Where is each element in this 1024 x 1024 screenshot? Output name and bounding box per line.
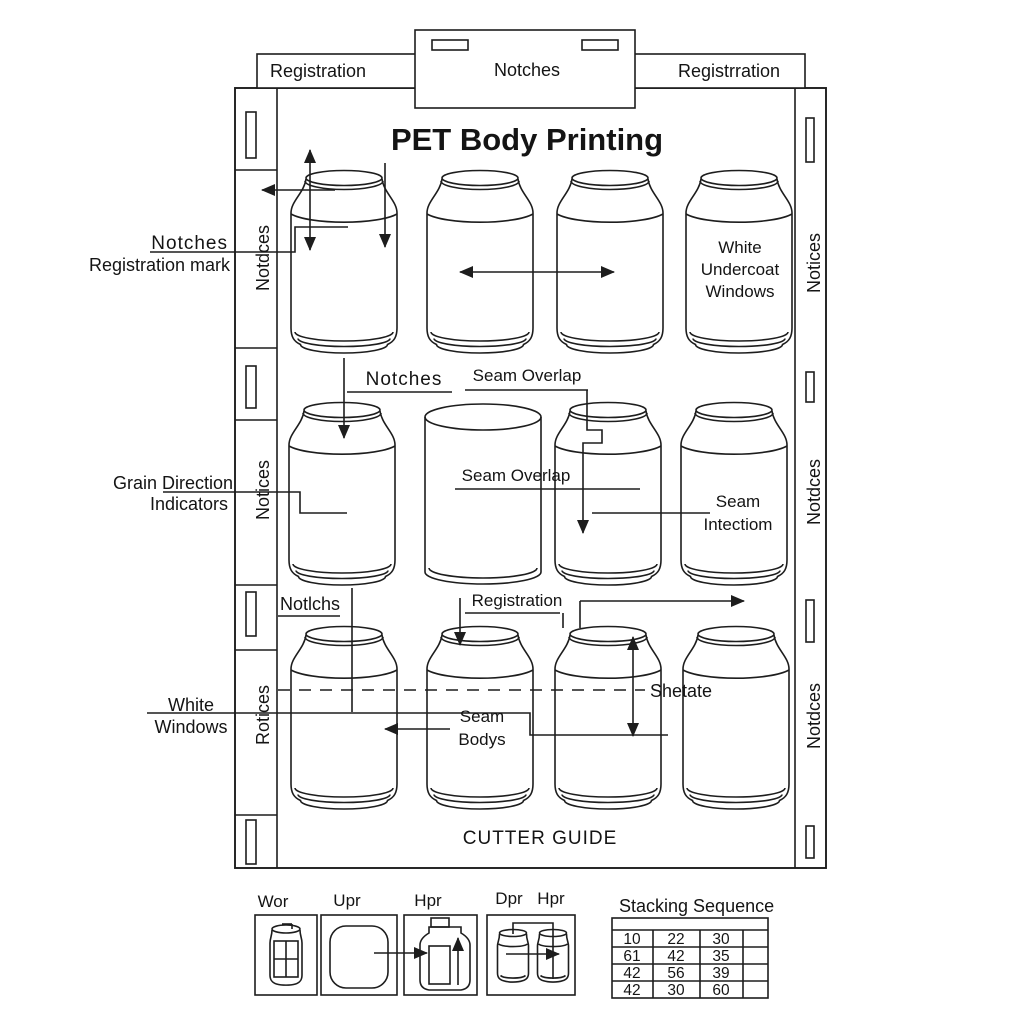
row2-cans	[289, 403, 787, 586]
row3-notches-label: Notlchs	[280, 594, 340, 614]
white-windows-label-2: Windows	[154, 717, 227, 737]
seam-overlap-leader-arrow	[583, 390, 602, 533]
stacking-cell: 30	[712, 931, 730, 948]
open-cylinder	[425, 404, 541, 584]
legend-label-hpr: Hpr	[414, 891, 442, 910]
row1-registration-mark-label: Registration mark	[89, 255, 231, 275]
row3-annotations	[147, 588, 744, 736]
row3-cans	[291, 627, 789, 810]
side-label-right-top: Notices	[804, 233, 824, 293]
legend	[255, 915, 575, 995]
row3-registration-label: Registration	[472, 591, 563, 610]
stacking-cell: 60	[712, 982, 730, 999]
seam-bodys-label-2: Bodys	[458, 730, 505, 749]
legend-label-wor: Wor	[258, 892, 289, 911]
can	[555, 627, 661, 810]
side-label-right-mid: Notdces	[804, 459, 824, 525]
can	[555, 403, 661, 586]
can	[289, 403, 395, 586]
white-windows-label-1: White	[168, 695, 214, 715]
can	[557, 171, 663, 354]
legend-label-upr: Upr	[333, 891, 361, 910]
grain-direction-label-2: Indicators	[150, 494, 228, 514]
seam-bodys-label-1: Seam	[460, 707, 504, 726]
legend-label-hpr2: Hpr	[537, 889, 565, 908]
white-undercoat-label-3: Windows	[706, 282, 775, 301]
diagram-canvas: Registration Notches Registrration PET B…	[0, 0, 1024, 1024]
bottle-with-window-icon	[420, 918, 470, 990]
side-label-left-top: Notdces	[253, 225, 273, 291]
can	[291, 171, 397, 354]
white-undercoat-label-1: White	[718, 238, 761, 257]
cutter-guide-label: CUTTER GUIDE	[463, 828, 618, 849]
legend-label-dpr: Dpr	[495, 889, 523, 908]
can-with-window-icon	[270, 924, 302, 985]
stacking-cell: 10	[623, 931, 641, 948]
side-label-left-bottom: Rotices	[253, 685, 273, 745]
pet-body-printing-diagram: Registration Notches Registrration PET B…	[0, 0, 1024, 1024]
top-left-label: Registration	[270, 61, 366, 81]
stacking-cell: 35	[712, 948, 729, 965]
stacking-cell: 30	[667, 982, 685, 999]
stacking-cell: 22	[667, 931, 684, 948]
stacking-cell: 61	[623, 948, 640, 965]
white-undercoat-label-2: Undercoat	[701, 260, 780, 279]
stacking-cell: 42	[623, 982, 640, 999]
row2-notches-label: Notches	[366, 369, 443, 390]
stacking-cell: 56	[667, 965, 684, 982]
stacking-cell: 39	[712, 965, 729, 982]
can	[683, 627, 789, 810]
seam-overlap-mid-label: Seam Overlap	[462, 466, 571, 485]
can	[427, 171, 533, 354]
top-center-label: Notches	[494, 60, 560, 80]
seam-overlap-top-label: Seam Overlap	[473, 366, 582, 385]
side-label-right-bottom: Notdces	[804, 683, 824, 749]
side-label-left-mid: Notices	[253, 460, 273, 520]
two-cans-icon	[498, 923, 569, 982]
top-right-label: Registrration	[678, 61, 780, 81]
seam-intection-label-1: Seam	[716, 492, 760, 511]
stacking-cell: 42	[623, 965, 640, 982]
registration-ticks	[246, 112, 814, 864]
page-title: PET Body Printing	[391, 122, 663, 157]
blank-label-icon	[330, 926, 388, 988]
seam-intection-label-2: Intectiom	[704, 515, 773, 534]
stacking-title: Stacking Sequence	[619, 896, 774, 916]
row1-notches-label: Notches	[151, 233, 228, 254]
shetate-label: Shetate	[650, 681, 712, 701]
grain-direction-label-1: Grain Direction	[113, 473, 233, 493]
can	[291, 627, 397, 810]
stacking-cell: 42	[667, 948, 684, 965]
